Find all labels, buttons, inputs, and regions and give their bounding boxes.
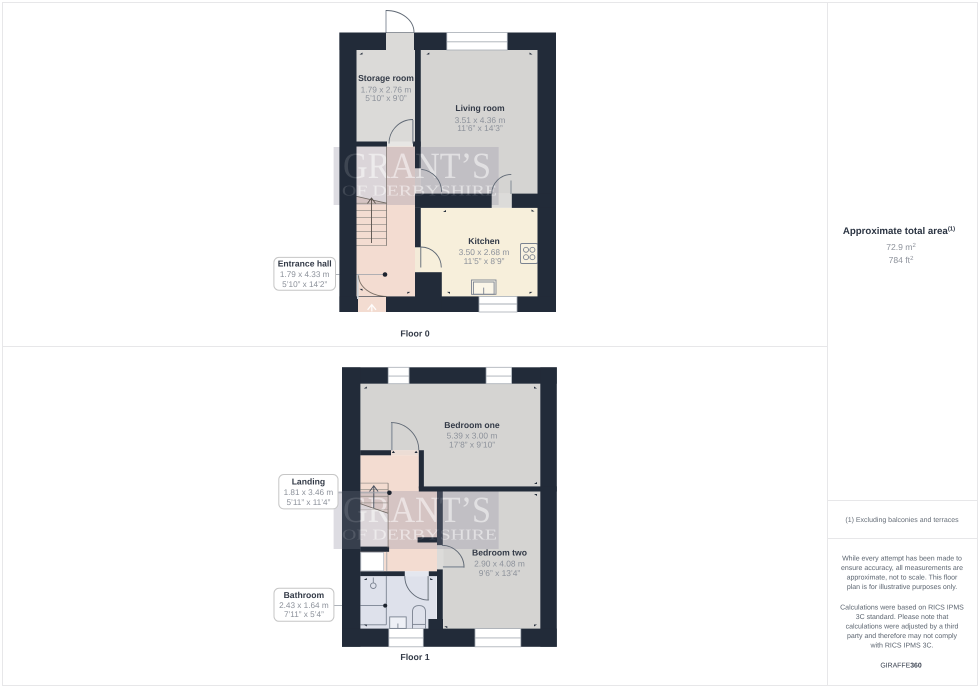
svg-text:5’11” x 11’4”: 5’11” x 11’4” [286, 498, 330, 507]
svg-text:OF DERBYSHIRE: OF DERBYSHIRE [342, 184, 497, 200]
svg-text:calculations were adjusted by: calculations were adjusted by a third [846, 623, 959, 631]
svg-text:9’6” x 13’4”: 9’6” x 13’4” [479, 568, 521, 578]
svg-text:3C standard. Please note that: 3C standard. Please note that [856, 613, 949, 621]
svg-text:784 ft2: 784 ft2 [889, 255, 915, 265]
svg-text:2.43 x 1.64 m: 2.43 x 1.64 m [279, 601, 329, 610]
svg-text:17’8” x 9’10”: 17’8” x 9’10” [449, 439, 495, 449]
svg-text:Floor 0: Floor 0 [400, 329, 429, 339]
svg-text:5’10” x 9’0”: 5’10” x 9’0” [365, 93, 407, 103]
svg-text:Landing: Landing [292, 477, 325, 487]
svg-text:plan is for illustrative purpo: plan is for illustrative purposes only. [847, 583, 957, 591]
svg-text:11’6” x 14’3”: 11’6” x 14’3” [457, 123, 503, 133]
svg-text:5’10” x 14’2”: 5’10” x 14’2” [282, 280, 327, 289]
svg-text:Bedroom two: Bedroom two [472, 548, 527, 558]
svg-text:OF DERBYSHIRE: OF DERBYSHIRE [342, 528, 497, 544]
svg-text:Floor 1: Floor 1 [400, 652, 429, 662]
svg-text:ensure accuracy, all measureme: ensure accuracy, all measurements are [841, 564, 963, 572]
svg-text:While every attempt has been m: While every attempt has been made to [842, 555, 962, 563]
svg-text:GRANT’S: GRANT’S [343, 146, 491, 187]
svg-text:approximate, not to scale. Thi: approximate, not to scale. This floor [847, 574, 958, 582]
svg-text:with RICS IPMS 3C.: with RICS IPMS 3C. [869, 642, 933, 650]
svg-text:GIRAFFE360: GIRAFFE360 [880, 663, 922, 670]
svg-text:72.9 m2: 72.9 m2 [886, 242, 916, 252]
svg-text:party and therefore may not co: party and therefore may not comply [847, 632, 958, 640]
svg-text:(1) Excluding balconies and te: (1) Excluding balconies and terraces [845, 516, 959, 524]
svg-text:Bedroom one: Bedroom one [444, 420, 500, 430]
svg-text:Approximate total area(1): Approximate total area(1) [843, 226, 955, 238]
svg-text:Calculations were based on RIC: Calculations were based on RICS IPMS [840, 604, 964, 612]
svg-text:Bathroom: Bathroom [284, 590, 325, 600]
svg-text:Storage room: Storage room [358, 73, 414, 83]
svg-text:Living room: Living room [455, 103, 505, 113]
svg-text:11’5” x 8’9”: 11’5” x 8’9” [464, 256, 505, 266]
svg-text:Entrance hall: Entrance hall [278, 259, 332, 269]
svg-text:Kitchen: Kitchen [468, 236, 500, 246]
svg-text:1.79 x 4.33 m: 1.79 x 4.33 m [280, 270, 330, 279]
svg-text:7’11” x 5’4”: 7’11” x 5’4” [284, 610, 324, 619]
svg-text:1.81 x 3.46 m: 1.81 x 3.46 m [284, 488, 334, 497]
